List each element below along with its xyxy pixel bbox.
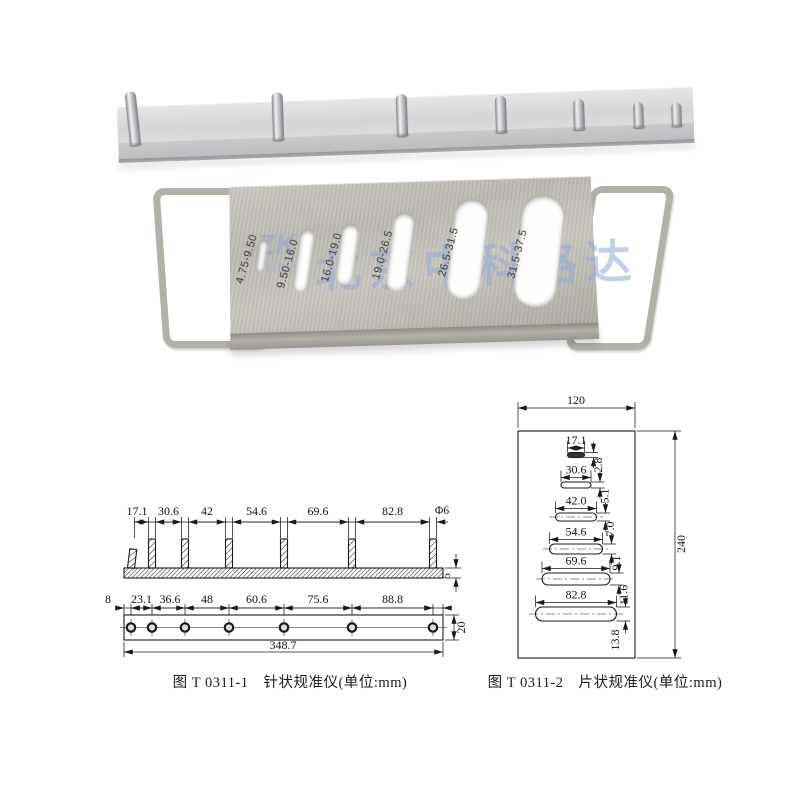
gauge-pin: [395, 94, 407, 136]
slot-width-label: 54.6: [566, 525, 587, 539]
plate-width-label: 120: [567, 393, 585, 407]
dim-label: 17.1: [127, 504, 148, 518]
gauge-pin: [271, 92, 284, 140]
dim-label: 30.6: [158, 504, 179, 518]
plan-dimension-labels: 8 23.1 36.6 48 60.6 75.6 88.8 20 348.7: [105, 592, 468, 652]
figure-slot-gauge-drawing: 120 240 17.1 30.6 42.0 54.6 69.6 82.8 2.…: [495, 392, 705, 677]
plate-height-label: 240: [674, 535, 688, 553]
slot-width-label: 17.1: [566, 433, 587, 447]
slot-height-label: 13.8: [608, 630, 622, 651]
dim-label: 23.1: [131, 592, 152, 606]
figure1-caption: 图 T 0311-1 针状规准仪(单位:mm): [140, 671, 440, 692]
gauge-pin: [633, 102, 644, 128]
product-image: ZK 中科路达 北京中科路达 4.75-9.50 9.50-16.0 16.0-…: [0, 0, 800, 800]
figure2-caption: 图 T 0311-2 片状规准仪(单位:mm): [460, 671, 750, 692]
dim-label: 82.8: [382, 504, 403, 518]
slot-gauge-photo: ZK 中科路达 北京中科路达 4.75-9.50 9.50-16.0 16.0-…: [155, 172, 685, 367]
bar-thickness-label: 5: [439, 573, 453, 579]
slot-height-label: 7.0: [603, 522, 617, 537]
dim-label: 88.8: [382, 592, 403, 606]
dim-label: 36.6: [160, 592, 181, 606]
slot-width-label: 42.0: [566, 494, 587, 508]
gauge-pin: [671, 102, 682, 126]
plan-view: [120, 615, 447, 640]
dim-label: 42: [201, 504, 213, 518]
dim-label: 8: [105, 592, 111, 606]
slot-height-label: 11.6: [617, 585, 631, 606]
dim-label: 54.6: [246, 504, 267, 518]
dim-label: 60.6: [246, 592, 267, 606]
slot-width-label: 30.6: [566, 463, 587, 477]
side-view: [124, 539, 443, 578]
pin-diameter-label: Φ6: [435, 505, 449, 517]
slot-height-label: 5.1: [598, 489, 612, 504]
slot-gauge-plate: ZK 中科路达 北京中科路达 4.75-9.50 9.50-16.0 16.0-…: [229, 176, 599, 350]
bar-width-label: 20: [454, 622, 468, 634]
gauge-pin: [494, 95, 506, 132]
dim-label: 69.6: [308, 504, 329, 518]
total-length-label: 348.7: [270, 638, 297, 652]
figure-pin-gauge-drawing: 17.1 30.6 42 54.6 69.6 82.8 Φ6 5: [95, 500, 475, 695]
slot-height-label: 2.8: [591, 458, 605, 473]
slot-width-label: 82.8: [566, 588, 587, 602]
gauge-pin: [572, 99, 584, 130]
slot-width-label: 69.6: [566, 554, 587, 568]
dim-label: 75.6: [308, 592, 329, 606]
slot-height-label: 9.1: [609, 556, 623, 571]
dim-label: 48: [201, 592, 213, 606]
